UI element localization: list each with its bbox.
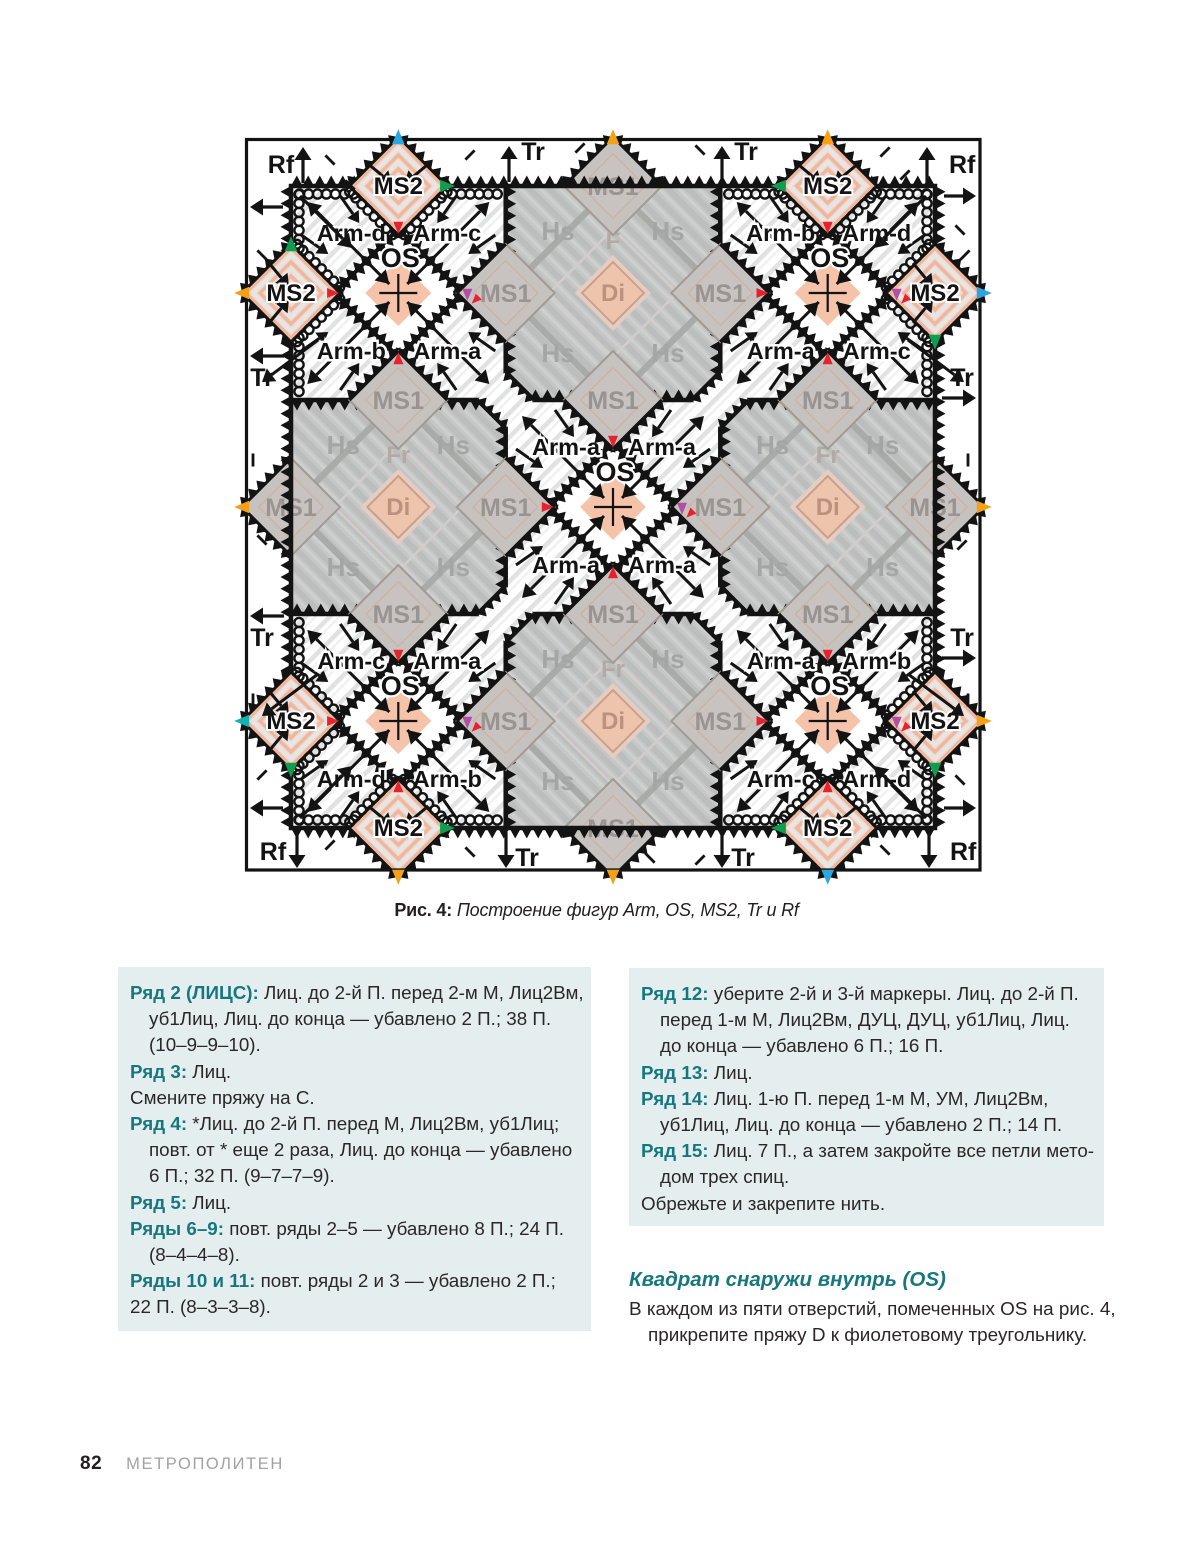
svg-text:Rf: Rf [268,151,295,179]
svg-text:Arm-c: Arm-c [317,648,385,674]
svg-text:Di: Di [816,494,840,521]
svg-text:Hs: Hs [651,766,684,796]
svg-text:OS: OS [810,243,849,273]
svg-text:Hs: Hs [756,430,789,460]
svg-text:MS2: MS2 [266,280,315,307]
svg-text:Hs: Hs [651,216,684,246]
svg-text:OS: OS [810,671,849,701]
svg-text:MS1: MS1 [695,494,747,522]
svg-text:Tr: Tr [250,624,274,652]
svg-text:Tr: Tr [734,138,758,166]
svg-text:MS2: MS2 [374,173,423,200]
svg-text:Arm-a: Arm-a [747,648,816,674]
svg-text:MS1: MS1 [695,280,747,308]
svg-text:Tr: Tr [521,138,545,166]
svg-text:Rf: Rf [260,838,287,866]
svg-text:Hs: Hs [651,338,684,368]
svg-text:Arm-a: Arm-a [628,434,697,460]
svg-text:Hs: Hs [541,216,574,246]
svg-text:Arm-a: Arm-a [628,552,697,578]
svg-text:Hs: Hs [437,552,470,582]
svg-text:MS1: MS1 [802,387,854,415]
svg-text:Arm-a: Arm-a [532,434,601,460]
svg-text:Hs: Hs [541,644,574,674]
svg-text:Hs: Hs [327,552,360,582]
svg-text:MS1: MS1 [480,708,532,736]
svg-text:Hs: Hs [541,766,574,796]
svg-text:Arm-d: Arm-d [317,766,386,792]
svg-text:MS1: MS1 [480,280,532,308]
svg-text:Tr: Tr [950,624,974,652]
svg-text:Hs: Hs [541,338,574,368]
svg-text:Arm-b: Arm-b [842,648,911,674]
svg-text:Hs: Hs [327,430,360,460]
svg-text:MS2: MS2 [803,815,852,842]
svg-text:Arm-c: Arm-c [843,338,911,364]
svg-text:Di: Di [601,280,625,307]
svg-text:Hs: Hs [756,552,789,582]
svg-text:MS2: MS2 [803,173,852,200]
svg-text:Hs: Hs [651,644,684,674]
svg-text:Arm-a: Arm-a [413,648,482,674]
svg-text:Arm-c: Arm-c [413,220,481,246]
svg-text:MS1: MS1 [587,387,639,415]
svg-text:Arm-a: Arm-a [747,338,816,364]
svg-text:Arm-a: Arm-a [413,338,482,364]
svg-text:Hs: Hs [866,552,899,582]
svg-text:Di: Di [386,494,410,521]
svg-text:Rf: Rf [949,151,976,179]
svg-text:MS2: MS2 [910,280,959,307]
svg-text:Arm-b: Arm-b [413,766,482,792]
svg-text:MS1: MS1 [802,601,854,629]
svg-text:MS1: MS1 [695,708,747,736]
svg-text:Tr: Tr [731,844,755,872]
svg-text:Hs: Hs [866,430,899,460]
svg-text:OS: OS [381,243,420,273]
svg-text:Di: Di [601,708,625,735]
svg-text:OS: OS [381,671,420,701]
svg-text:MS1: MS1 [373,601,425,629]
svg-text:OS: OS [595,457,634,487]
svg-text:Arm-c: Arm-c [747,766,815,792]
svg-text:Tr: Tr [515,844,539,872]
svg-text:Arm-a: Arm-a [532,552,601,578]
svg-text:MS1: MS1 [480,494,532,522]
svg-text:Rf: Rf [950,838,977,866]
svg-text:MS1: MS1 [373,387,425,415]
svg-text:Arm-b: Arm-b [317,338,386,364]
svg-text:Hs: Hs [437,430,470,460]
svg-text:MS1: MS1 [587,601,639,629]
svg-text:MS2: MS2 [374,815,423,842]
